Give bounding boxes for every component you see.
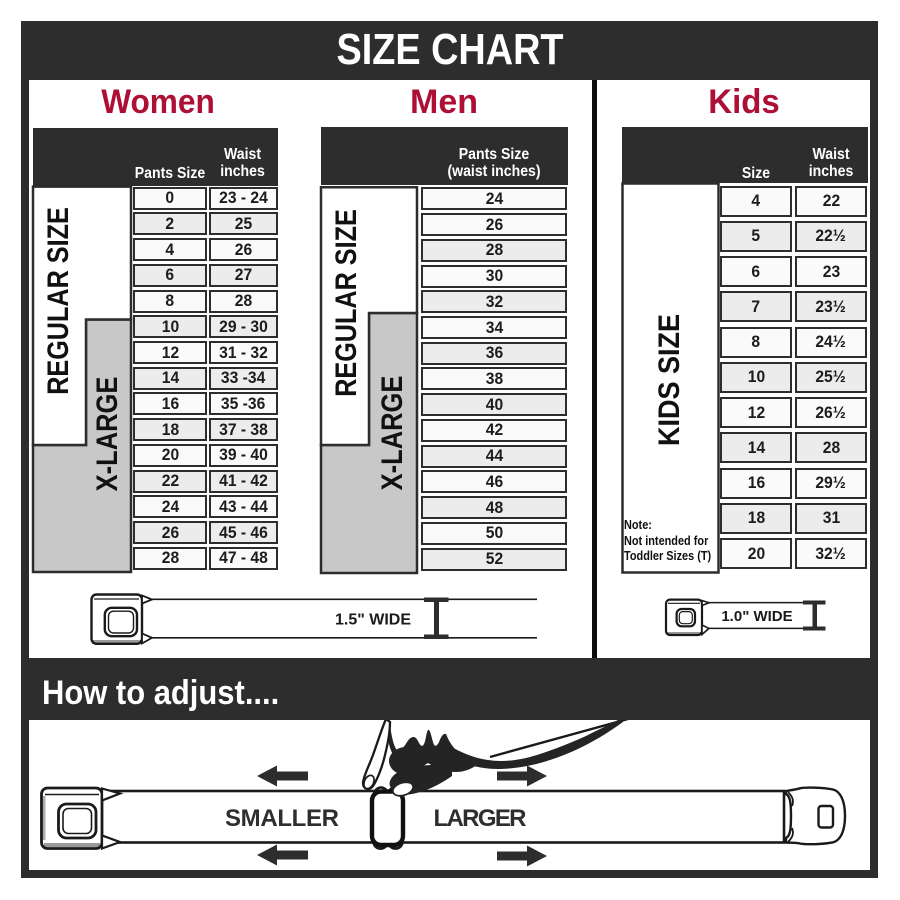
svg-text:LARGER: LARGER	[434, 805, 527, 832]
svg-text:1.5" WIDE: 1.5" WIDE	[335, 612, 411, 629]
svg-text:SMALLER: SMALLER	[225, 805, 339, 832]
svg-text:1.0" WIDE: 1.0" WIDE	[721, 608, 792, 625]
